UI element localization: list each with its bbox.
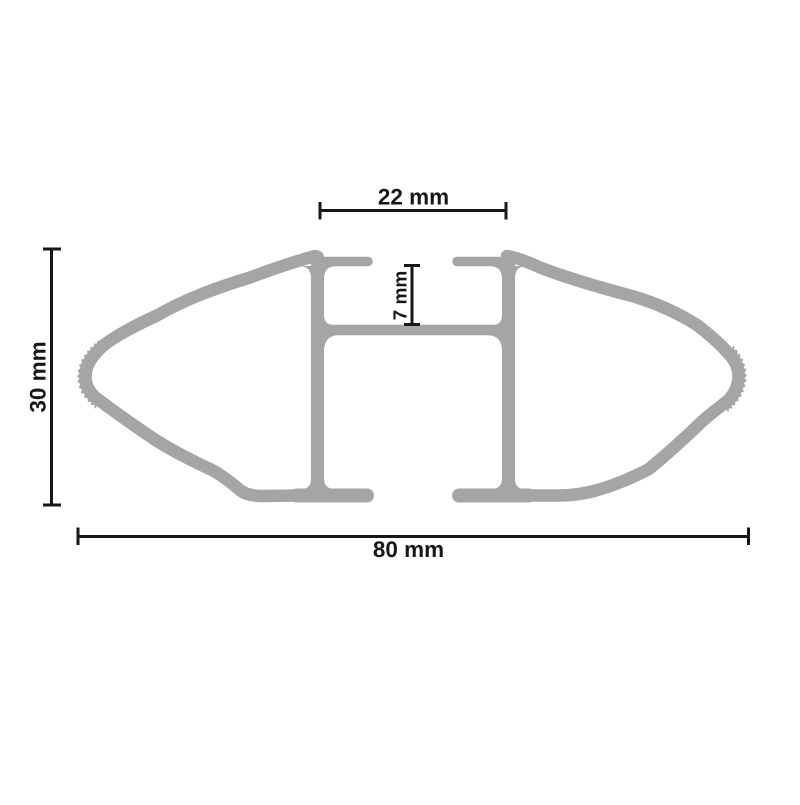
svg-text:80 mm: 80 mm [373,537,444,562]
svg-text:30 mm: 30 mm [26,341,51,412]
svg-text:7 mm: 7 mm [391,271,412,321]
svg-text:22 mm: 22 mm [378,185,449,210]
